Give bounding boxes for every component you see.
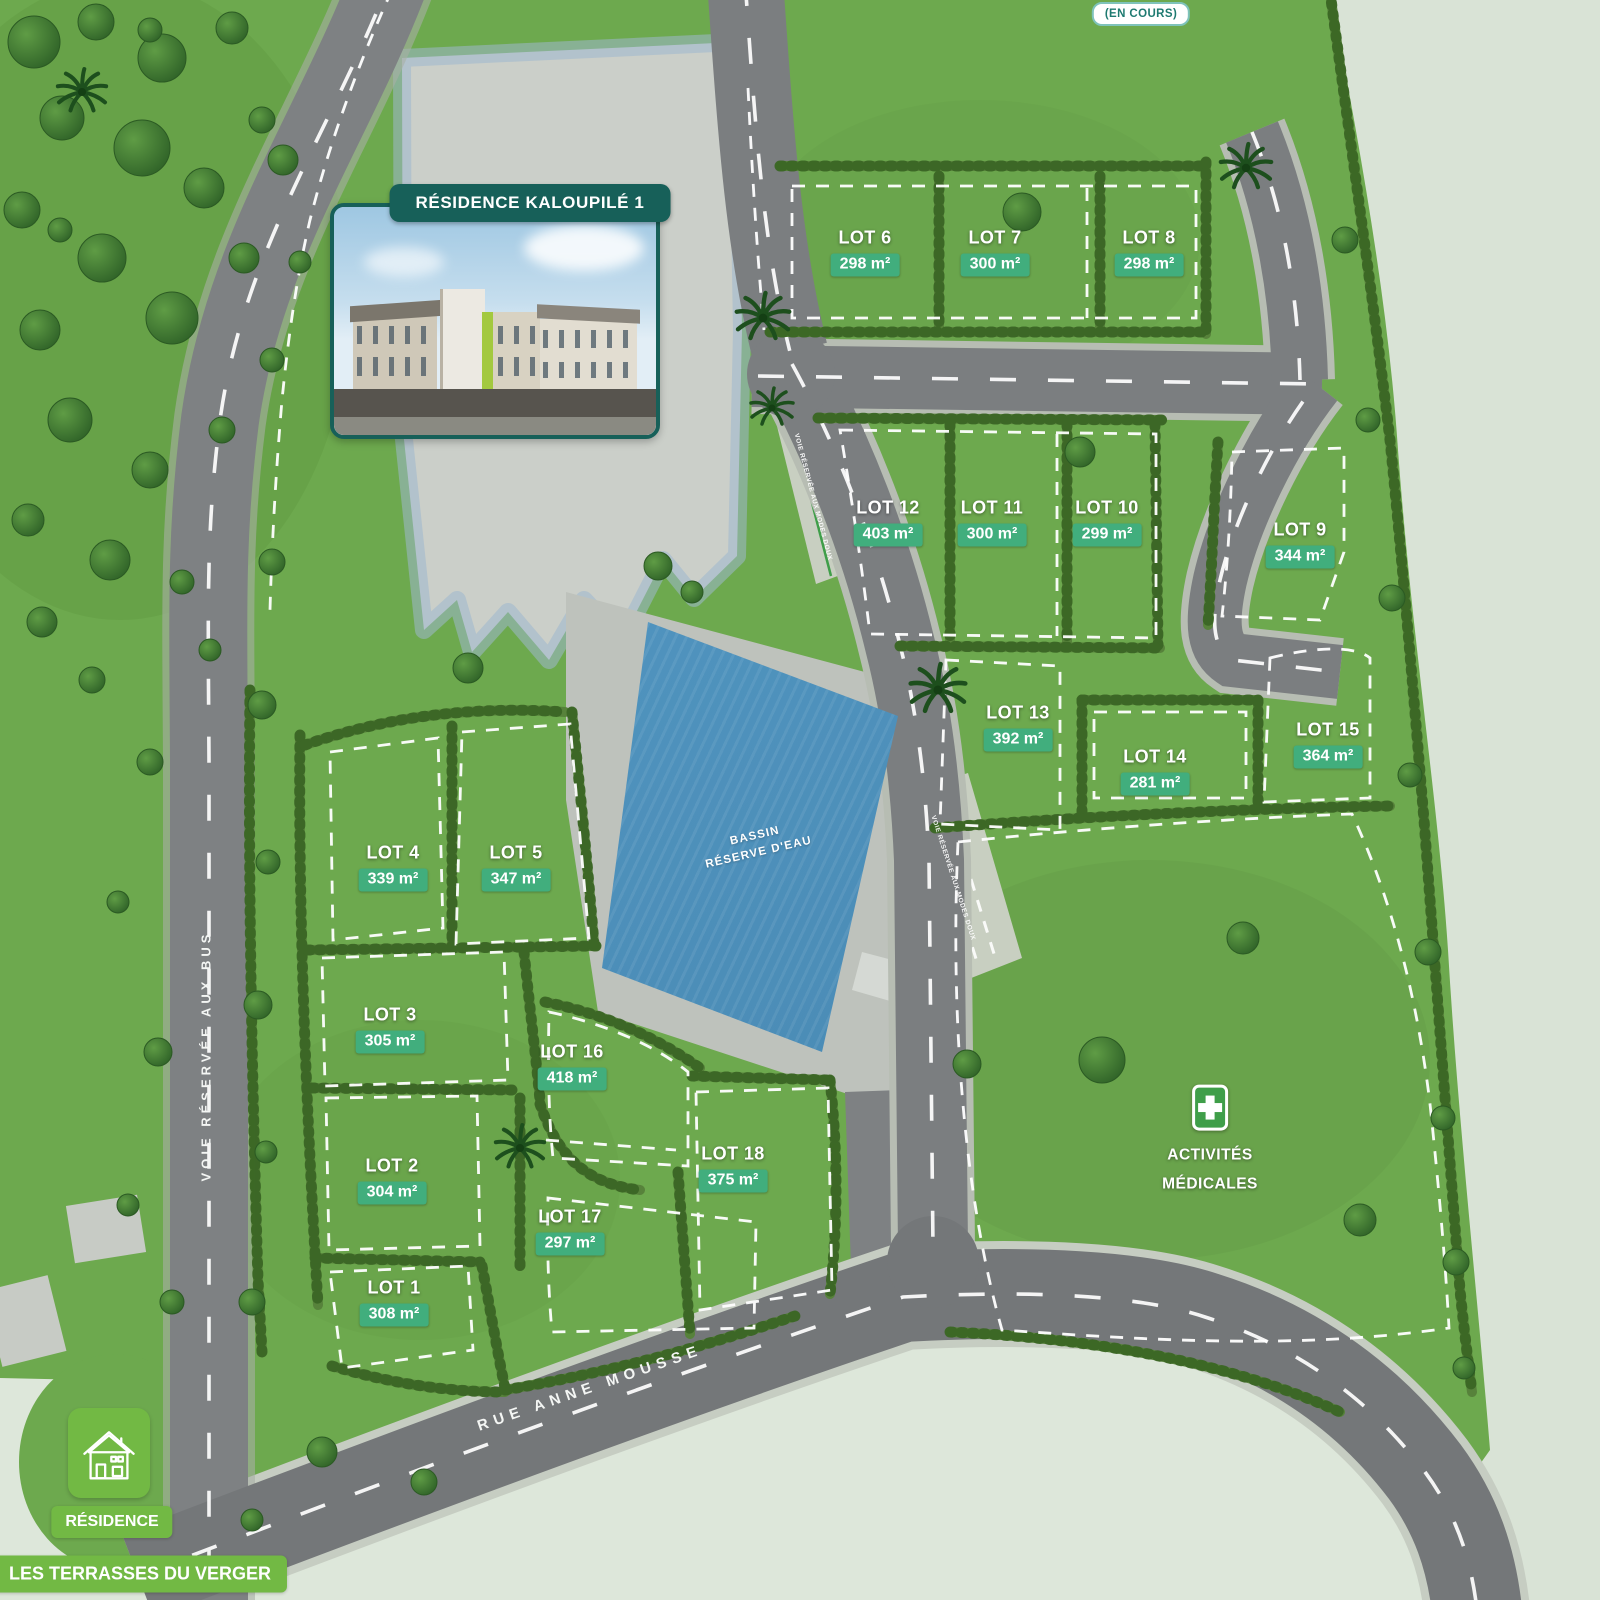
house-icon [77, 1420, 141, 1486]
medical-label-line2: MÉDICALES [1162, 1170, 1258, 1199]
site-plan-canvas [0, 0, 1600, 1600]
residence-house-icon [68, 1408, 150, 1498]
residence-photo [330, 203, 660, 439]
residence-photo-image [334, 207, 656, 435]
residence-terrasses-line2: LES TERRASSES DU VERGER [0, 1556, 287, 1593]
voie-bus-label: VOIE RÉSERVÉE AUX BUS [199, 931, 214, 1182]
residence-kaloupile-badge: RÉSIDENCE KALOUPILÉ 1 [390, 184, 671, 222]
en-cours-badge: (EN COURS) [1092, 2, 1190, 26]
medical-activities-zone: ACTIVITÉS MÉDICALES [1162, 1085, 1258, 1200]
residence-terrasses-line1: RÉSIDENCE [51, 1506, 172, 1538]
medical-cross-icon [1192, 1085, 1228, 1131]
medical-label-line1: ACTIVITÉS [1162, 1141, 1258, 1170]
site-plan: BASSIN RÉSERVE D'EAU (EN COURS) RÉSIDENC… [0, 0, 1600, 1600]
